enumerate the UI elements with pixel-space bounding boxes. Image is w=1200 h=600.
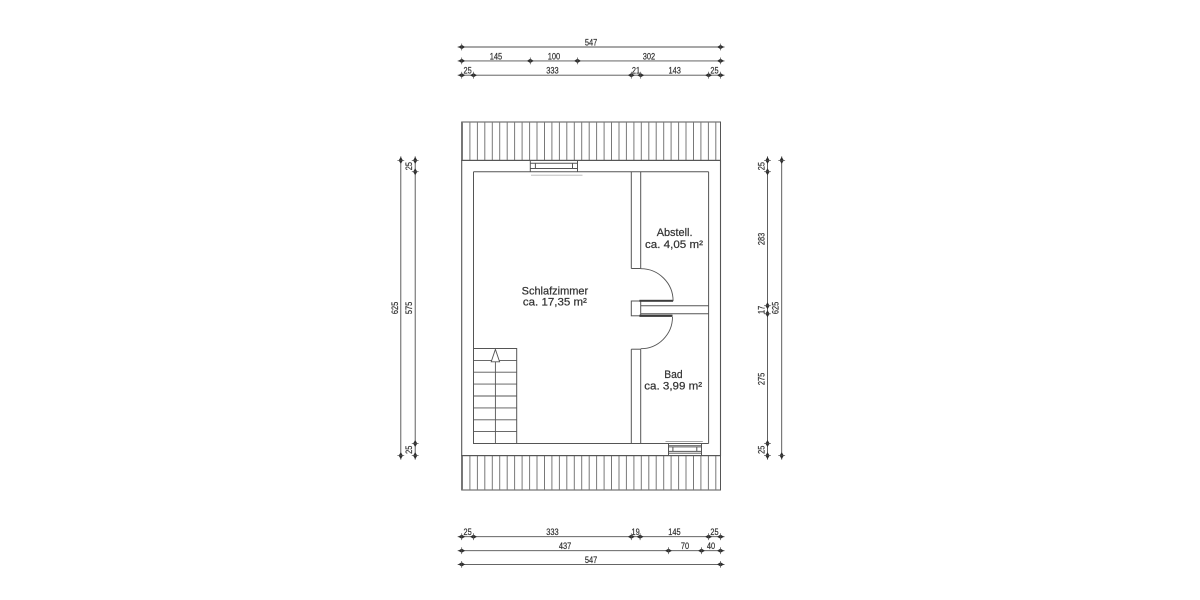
svg-text:145: 145 [490,51,502,61]
svg-text:283: 283 [756,233,766,245]
svg-text:25: 25 [404,446,414,454]
svg-text:302: 302 [643,51,655,61]
svg-text:Abstell.: Abstell. [657,227,693,239]
svg-text:ca. 4,05 m²: ca. 4,05 m² [645,239,703,251]
svg-text:333: 333 [546,66,558,76]
svg-text:25: 25 [464,527,472,537]
svg-text:40: 40 [707,541,715,551]
svg-text:275: 275 [756,373,766,385]
svg-text:145: 145 [668,527,680,537]
svg-text:Schlafzimmer: Schlafzimmer [522,285,589,297]
svg-text:625: 625 [390,302,400,314]
svg-text:17: 17 [756,306,766,314]
svg-text:437: 437 [559,541,571,551]
svg-text:ca. 3,99 m²: ca. 3,99 m² [644,380,702,392]
svg-text:25: 25 [710,527,718,537]
svg-text:19: 19 [632,527,640,537]
svg-text:25: 25 [756,446,766,454]
svg-text:25: 25 [756,162,766,170]
svg-text:25: 25 [710,66,718,76]
svg-text:25: 25 [464,66,472,76]
svg-text:333: 333 [546,527,558,537]
svg-text:21: 21 [632,66,640,76]
svg-text:547: 547 [585,555,597,565]
svg-text:Bad: Bad [664,369,682,381]
svg-text:547: 547 [585,37,597,47]
svg-text:ca. 17,35 m²: ca. 17,35 m² [523,297,587,309]
svg-text:25: 25 [404,162,414,170]
svg-text:575: 575 [404,302,414,314]
svg-text:625: 625 [771,302,781,314]
svg-text:70: 70 [681,541,689,551]
svg-text:143: 143 [669,66,681,76]
svg-text:100: 100 [548,51,560,61]
